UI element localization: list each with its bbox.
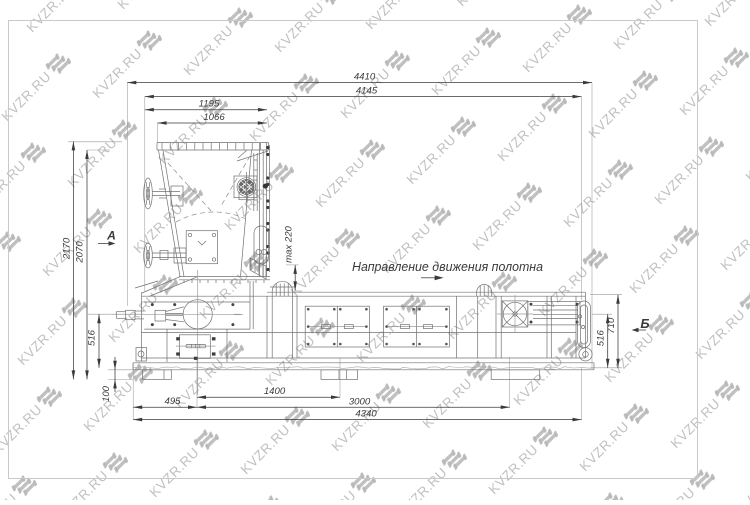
svg-text:4410: 4410 xyxy=(354,72,376,83)
svg-text:100: 100 xyxy=(101,385,112,402)
svg-text:1195: 1195 xyxy=(199,99,220,110)
svg-text:KVZR.RU: KVZR.RU xyxy=(363,0,418,32)
svg-text:3000: 3000 xyxy=(349,397,371,408)
svg-text:516: 516 xyxy=(595,330,606,347)
svg-text:KVZR.RU: KVZR.RU xyxy=(520,20,575,75)
svg-text:KVZR.RU: KVZR.RU xyxy=(718,218,750,273)
svg-text:KVZR.RU: KVZR.RU xyxy=(734,462,750,500)
svg-text:KVZR.RU: KVZR.RU xyxy=(511,353,566,408)
svg-text:KVZR.RU: KVZR.RU xyxy=(652,152,707,207)
svg-text:4145: 4145 xyxy=(356,86,378,97)
svg-text:KVZR.RU: KVZR.RU xyxy=(56,468,111,500)
svg-text:KVZR.RU: KVZR.RU xyxy=(90,46,145,101)
svg-text:KVZR.RU: KVZR.RU xyxy=(354,310,409,365)
svg-text:KVZR.RU: KVZR.RU xyxy=(181,23,236,78)
svg-text:KVZR.RU: KVZR.RU xyxy=(602,330,657,385)
svg-text:Направление движения полотна: Направление движения полотна xyxy=(352,259,543,274)
svg-text:KVZR.RU: KVZR.RU xyxy=(743,129,750,184)
svg-text:KVZR.RU: KVZR.RU xyxy=(115,0,170,12)
svg-text:2070: 2070 xyxy=(75,241,86,264)
svg-text:516: 516 xyxy=(87,329,98,346)
svg-text:KVZR.RU: KVZR.RU xyxy=(147,445,202,500)
svg-text:495: 495 xyxy=(164,396,181,407)
svg-text:KVZR.RU: KVZR.RU xyxy=(693,307,748,362)
svg-text:KVZR.RU: KVZR.RU xyxy=(586,86,641,141)
svg-text:KVZR.RU: KVZR.RU xyxy=(0,158,29,213)
svg-text:А: А xyxy=(106,229,116,243)
svg-text:KVZR.RU: KVZR.RU xyxy=(677,63,732,118)
svg-text:KVZR.RU: KVZR.RU xyxy=(263,333,318,388)
svg-text:KVZR.RU: KVZR.RU xyxy=(272,0,327,55)
svg-text:KVZR.RU: KVZR.RU xyxy=(24,0,79,35)
svg-text:KVZR.RU: KVZR.RU xyxy=(0,247,4,302)
svg-text:KVZR.RU: KVZR.RU xyxy=(486,442,541,497)
svg-text:KVZR.RU: KVZR.RU xyxy=(304,488,359,500)
svg-text:KVZR.RU: KVZR.RU xyxy=(395,465,450,500)
svg-text:4340: 4340 xyxy=(355,409,377,420)
svg-text:2170: 2170 xyxy=(62,237,73,260)
svg-text:KVZR.RU: KVZR.RU xyxy=(404,132,459,187)
svg-text:KVZR.RU: KVZR.RU xyxy=(15,313,70,368)
svg-text:KVZR.RU: KVZR.RU xyxy=(643,485,698,500)
svg-text:KVZR.RU: KVZR.RU xyxy=(627,241,682,296)
svg-text:KVZR.RU: KVZR.RU xyxy=(429,43,484,98)
svg-text:KVZR.RU: KVZR.RU xyxy=(536,264,591,319)
svg-text:KVZR.RU: KVZR.RU xyxy=(197,267,252,322)
svg-text:KVZR.RU: KVZR.RU xyxy=(0,402,45,457)
svg-text:KVZR.RU: KVZR.RU xyxy=(454,0,509,9)
svg-text:KVZR.RU: KVZR.RU xyxy=(470,198,525,253)
svg-text:KVZR.RU: KVZR.RU xyxy=(0,491,20,500)
svg-text:Б: Б xyxy=(640,316,649,331)
svg-text:KVZR.RU: KVZR.RU xyxy=(65,135,120,190)
svg-text:KVZR.RU: KVZR.RU xyxy=(238,422,293,477)
svg-text:KVZR.RU: KVZR.RU xyxy=(106,290,161,345)
svg-text:710: 710 xyxy=(606,317,617,334)
svg-text:KVZR.RU: KVZR.RU xyxy=(495,109,550,164)
svg-text:KVZR.RU: KVZR.RU xyxy=(561,175,616,230)
svg-text:KVZR.RU: KVZR.RU xyxy=(702,0,750,29)
svg-text:1066: 1066 xyxy=(203,112,225,123)
svg-text:KVZR.RU: KVZR.RU xyxy=(420,376,475,431)
svg-text:max 220: max 220 xyxy=(284,225,295,262)
svg-text:KVZR.RU: KVZR.RU xyxy=(313,155,368,210)
svg-text:KVZR.RU: KVZR.RU xyxy=(611,0,666,52)
svg-text:1400: 1400 xyxy=(264,386,286,397)
svg-text:KVZR.RU: KVZR.RU xyxy=(668,396,723,451)
svg-text:KVZR.RU: KVZR.RU xyxy=(577,419,632,474)
